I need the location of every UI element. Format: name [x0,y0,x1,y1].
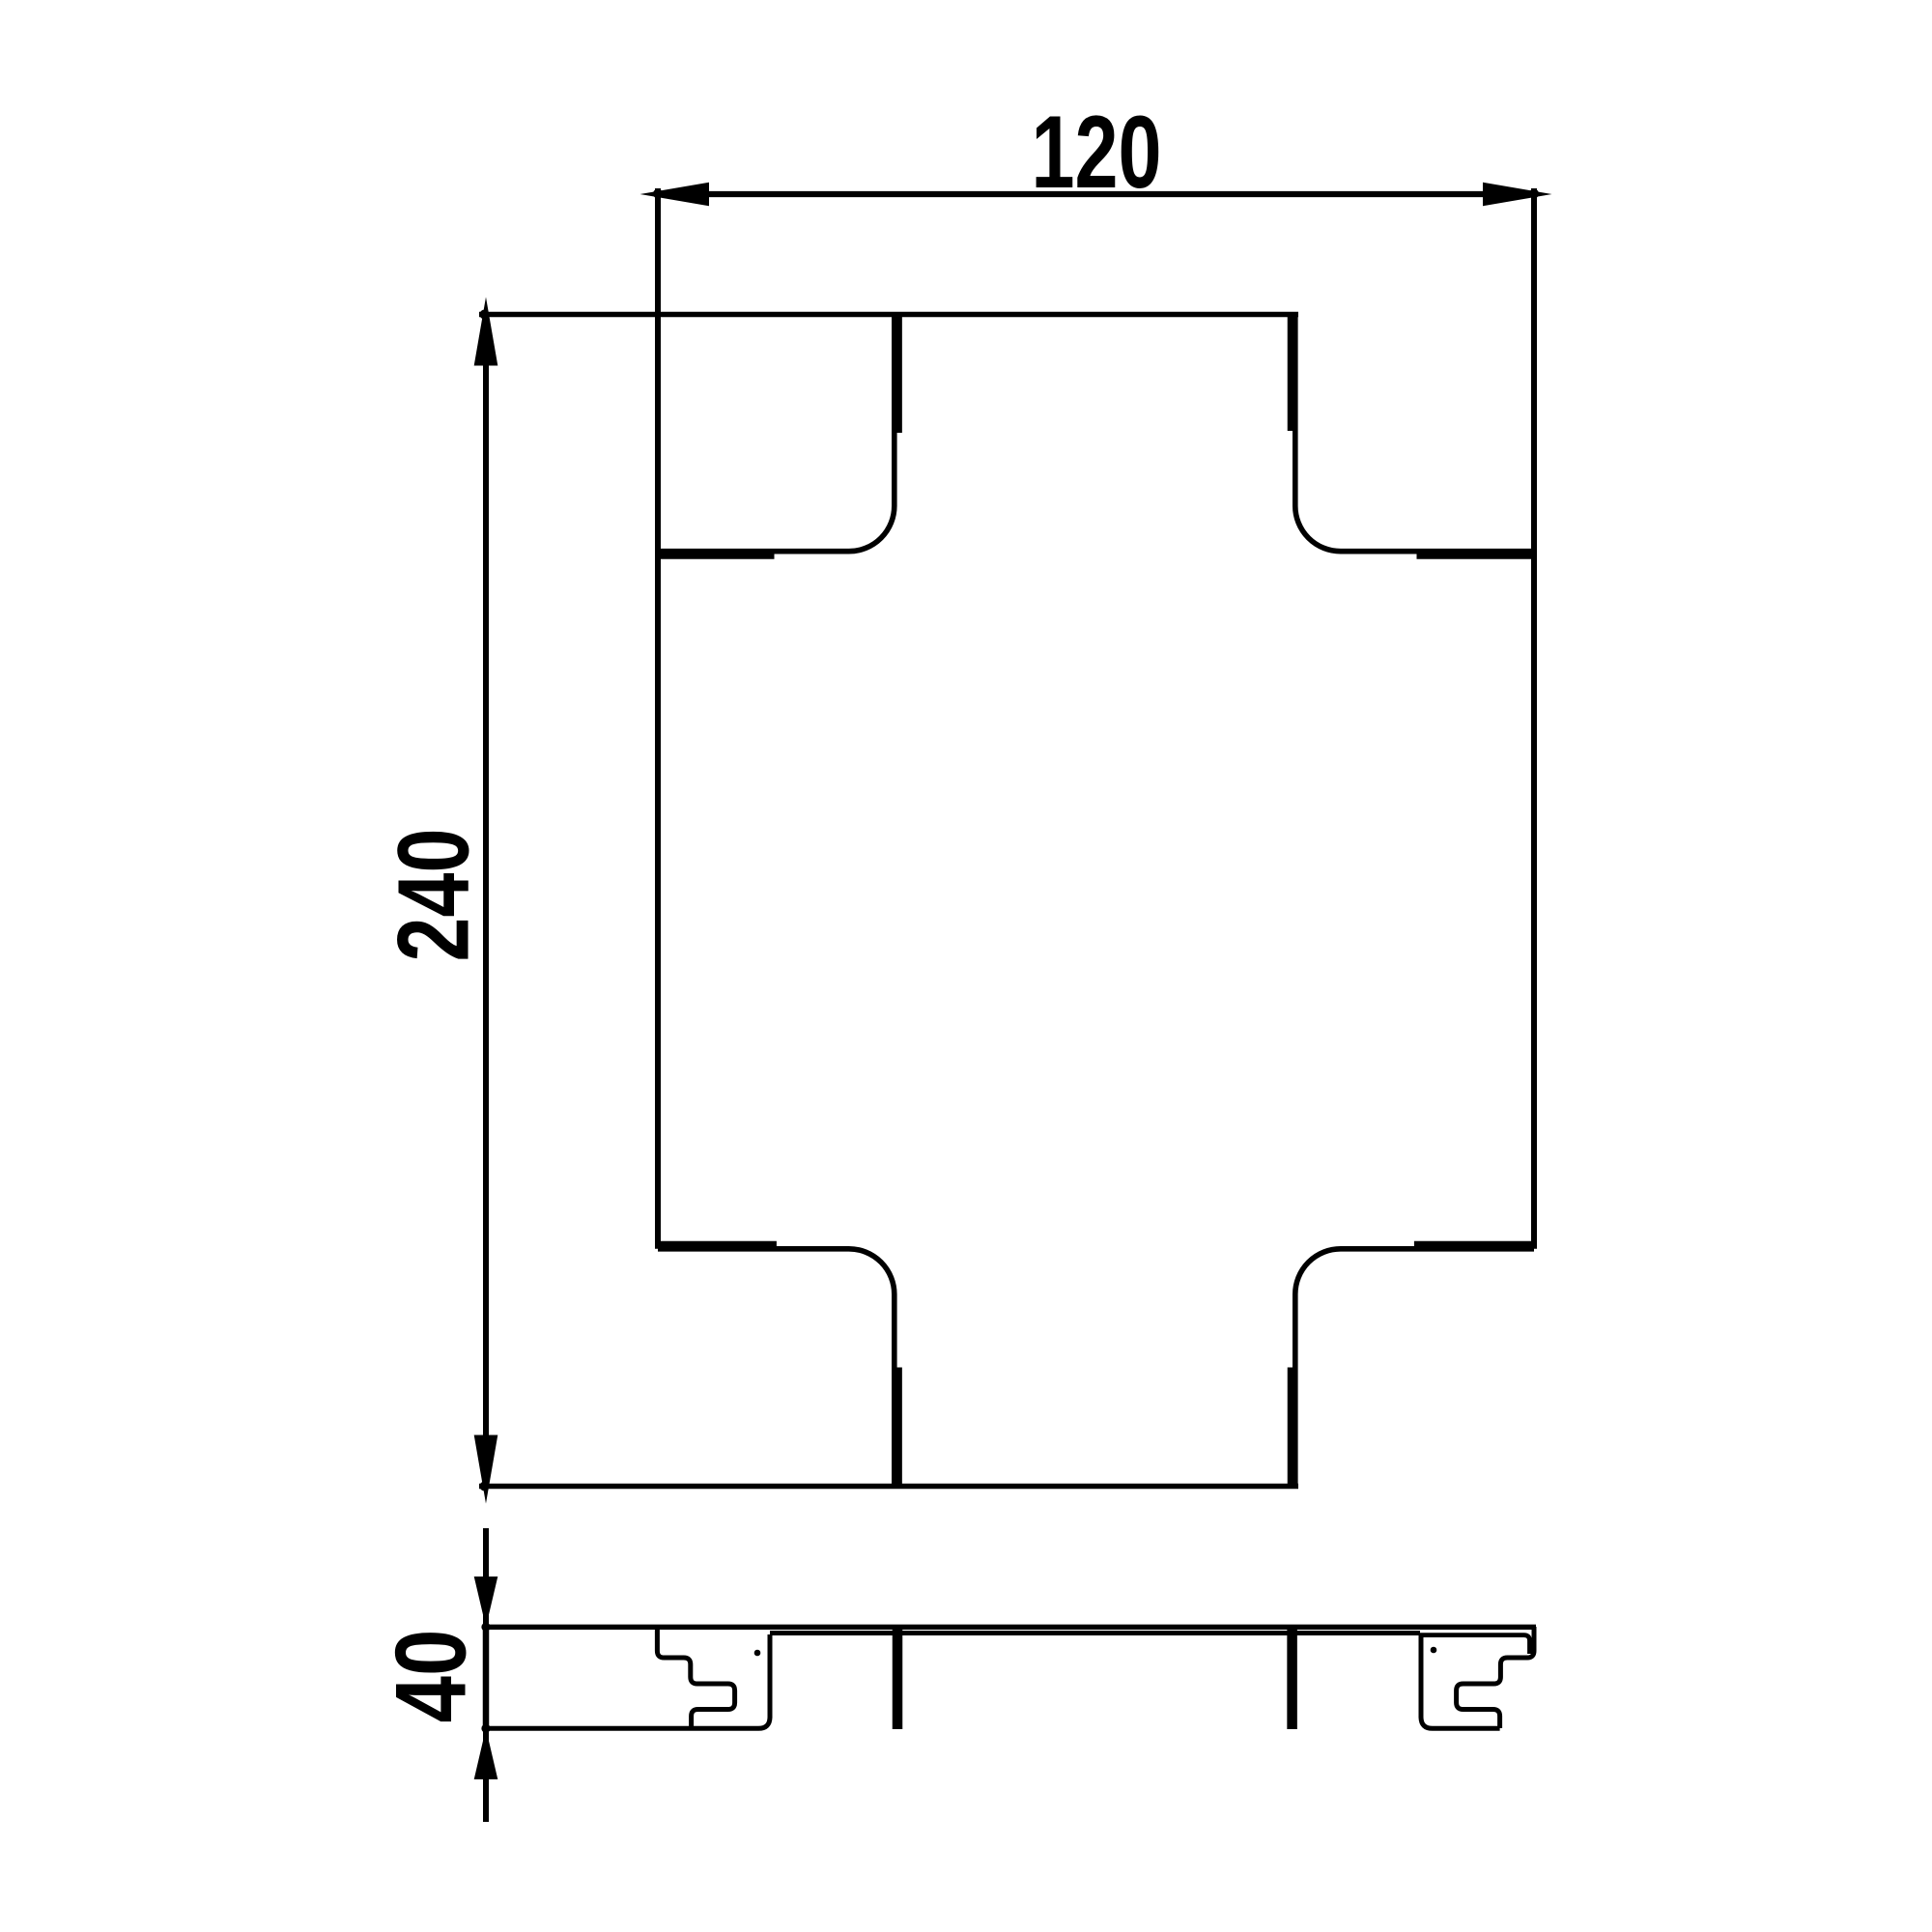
svg-text:240: 240 [378,829,491,962]
svg-text:40: 40 [376,1630,488,1723]
svg-text:120: 120 [1032,94,1162,210]
